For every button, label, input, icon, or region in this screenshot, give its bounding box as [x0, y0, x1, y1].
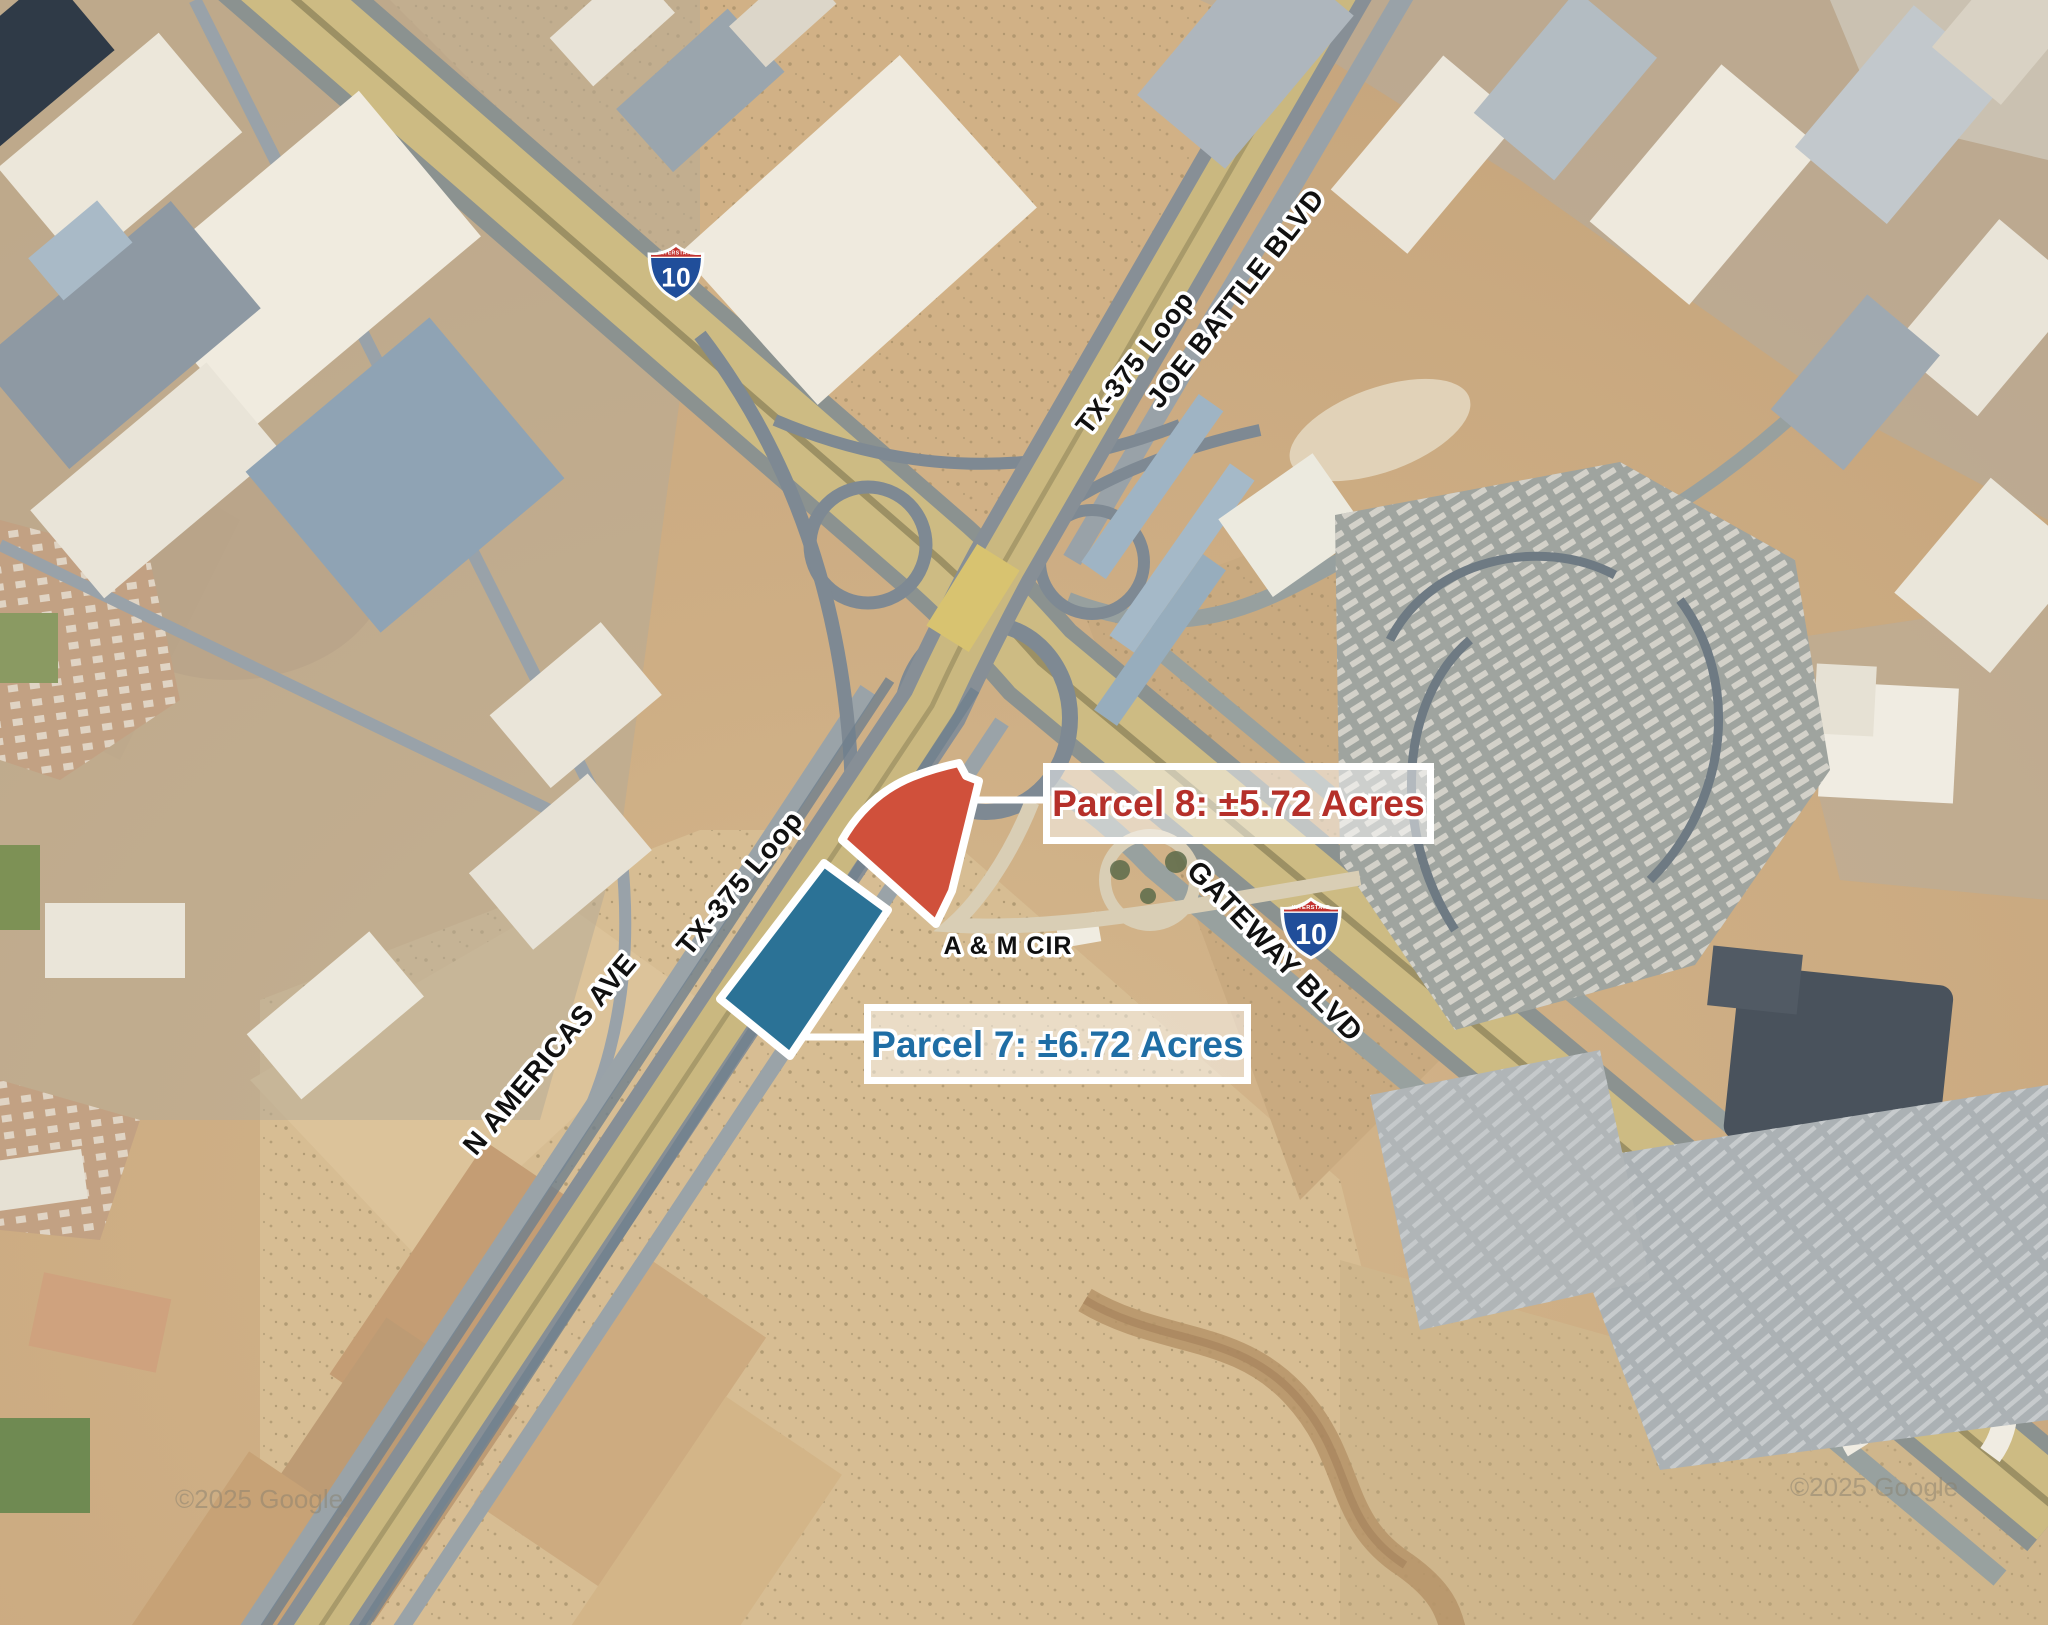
- tree: [1140, 888, 1156, 904]
- shield-route-number: 10: [661, 263, 690, 293]
- shield-interstate-text: INTERSTATE: [658, 251, 693, 257]
- satellite-imagery: ©2025 Google ©2025 Google TX-375 Loop JO…: [0, 0, 2048, 1625]
- road-label-a-and-m-cir: A & M CIR: [944, 932, 1073, 960]
- shield-divider: [1283, 911, 1338, 912]
- tree: [1110, 860, 1130, 880]
- school-building: [45, 903, 185, 978]
- sports-field: [0, 1418, 90, 1513]
- imagery-watermark: ©2025 Google: [1790, 1472, 1958, 1502]
- green-field: [0, 613, 58, 683]
- shield-divider: [651, 257, 702, 258]
- tree: [1165, 851, 1187, 873]
- building: [1813, 663, 1877, 736]
- imagery-watermark: ©2025 Google: [175, 1484, 343, 1514]
- parcel-8-label: Parcel 8: ±5.72 Acres: [1043, 763, 1434, 844]
- sports-field: [0, 845, 40, 930]
- building: [1707, 945, 1803, 1014]
- parcel-7-label: Parcel 7: ±6.72 Acres: [864, 1004, 1251, 1084]
- shield-route-number: 10: [1295, 919, 1327, 951]
- shield-interstate-text: INTERSTATE: [1292, 905, 1330, 911]
- aerial-parcel-map: ©2025 Google ©2025 Google TX-375 Loop JO…: [0, 0, 2048, 1625]
- parking-rows: [1370, 1050, 1650, 1330]
